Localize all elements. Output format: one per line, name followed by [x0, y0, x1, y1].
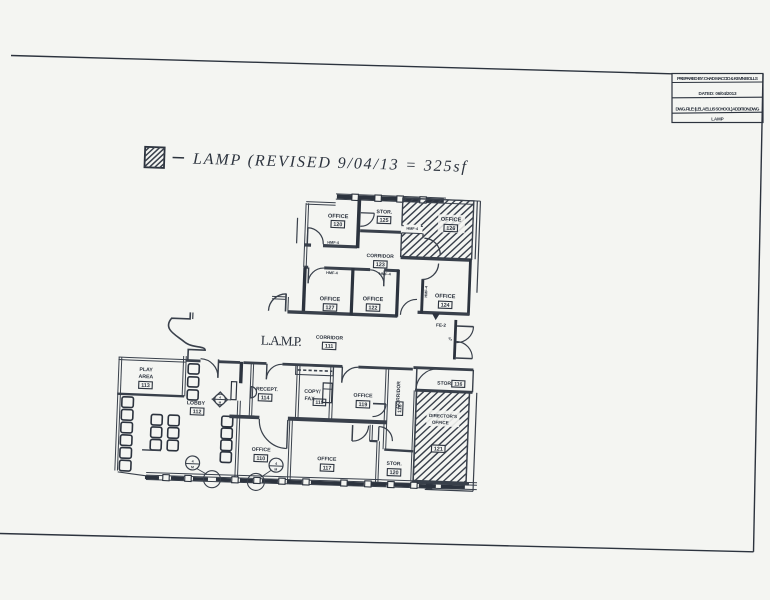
svg-text:126: 126: [446, 226, 455, 232]
svg-text:125: 125: [379, 218, 388, 224]
svg-text:LOBBY: LOBBY: [187, 400, 206, 407]
svg-text:HMF-4: HMF-4: [424, 285, 428, 298]
svg-text:HMF-4: HMF-4: [327, 241, 340, 245]
svg-text:4: 4: [192, 460, 194, 464]
svg-text:M: M: [191, 465, 194, 469]
svg-text:⅜: ⅜: [448, 336, 452, 341]
svg-text:OFFICE: OFFICE: [320, 296, 341, 303]
svg-text:PLAY: PLAY: [139, 367, 153, 374]
svg-text:110: 110: [256, 456, 265, 462]
svg-text:OFFICE: OFFICE: [441, 217, 462, 224]
svg-text:LAMP: LAMP: [711, 117, 724, 122]
svg-text:123: 123: [376, 262, 385, 268]
svg-text:124: 124: [440, 303, 449, 309]
svg-text:OFFICE: OFFICE: [353, 393, 373, 400]
svg-text:L.A.M.P.: L.A.M.P.: [261, 332, 303, 349]
svg-text:122: 122: [368, 305, 377, 311]
svg-text:RECEPT.: RECEPT.: [256, 386, 279, 393]
svg-text:119: 119: [358, 402, 367, 408]
svg-text:OFFICE: OFFICE: [363, 296, 384, 303]
svg-text:CORRIDOR: CORRIDOR: [316, 335, 344, 342]
svg-text:FE-2: FE-2: [436, 323, 447, 328]
svg-text:120: 120: [333, 222, 342, 228]
svg-text:DWG. FILE: (LELA ELLIS SCHOOL): DWG. FILE: (LELA ELLIS SCHOOL) ADDITION.…: [676, 107, 760, 112]
svg-text:COPY/: COPY/: [304, 389, 321, 396]
svg-text:HMF-4: HMF-4: [326, 271, 339, 275]
svg-text:118: 118: [397, 404, 403, 413]
svg-text:OFFICE: OFFICE: [432, 420, 449, 426]
svg-text:M: M: [274, 468, 277, 472]
svg-text:HMF-4: HMF-4: [379, 272, 392, 276]
svg-text:111: 111: [325, 344, 334, 350]
svg-text:113: 113: [141, 383, 150, 389]
svg-text:4: 4: [275, 462, 277, 466]
svg-text:OFFICE: OFFICE: [317, 456, 337, 463]
svg-text:116: 116: [454, 381, 463, 387]
svg-text:PREPARED BY: CHAD MACCIO & KEV: PREPARED BY: CHAD MACCIO & KEVIN BOLLS: [677, 76, 758, 81]
svg-text:HMF-4: HMF-4: [406, 227, 419, 231]
svg-text:OFFICE: OFFICE: [328, 213, 349, 220]
svg-text:117: 117: [323, 465, 332, 471]
svg-text:DATED: 06/04/2013: DATED: 06/04/2013: [699, 91, 737, 96]
svg-text:OFFICE: OFFICE: [252, 447, 272, 454]
svg-text:OFFICE: OFFICE: [435, 293, 456, 300]
svg-text:121: 121: [434, 446, 443, 452]
svg-text:120: 120: [389, 470, 398, 476]
svg-text:CORRIDOR: CORRIDOR: [366, 253, 394, 260]
svg-text:STOR.: STOR.: [437, 380, 453, 387]
svg-text:STOR.: STOR.: [386, 461, 402, 468]
svg-text:127: 127: [325, 305, 334, 311]
svg-text:AREA: AREA: [138, 374, 153, 381]
svg-text:114: 114: [261, 395, 270, 401]
svg-text:112: 112: [193, 409, 202, 415]
svg-text:STOR.: STOR.: [376, 209, 393, 216]
